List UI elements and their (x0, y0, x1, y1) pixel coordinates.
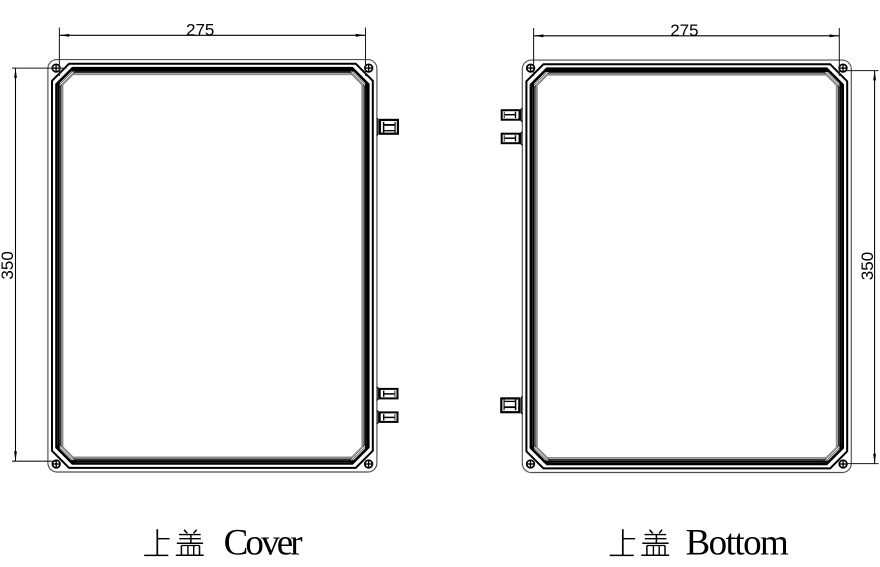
svg-text:350: 350 (858, 252, 877, 280)
svg-text:275: 275 (670, 21, 698, 40)
svg-text:Bottom: Bottom (686, 523, 789, 564)
svg-text:350: 350 (0, 251, 17, 279)
svg-text:275: 275 (186, 21, 214, 40)
svg-text:Cover: Cover (224, 523, 303, 564)
